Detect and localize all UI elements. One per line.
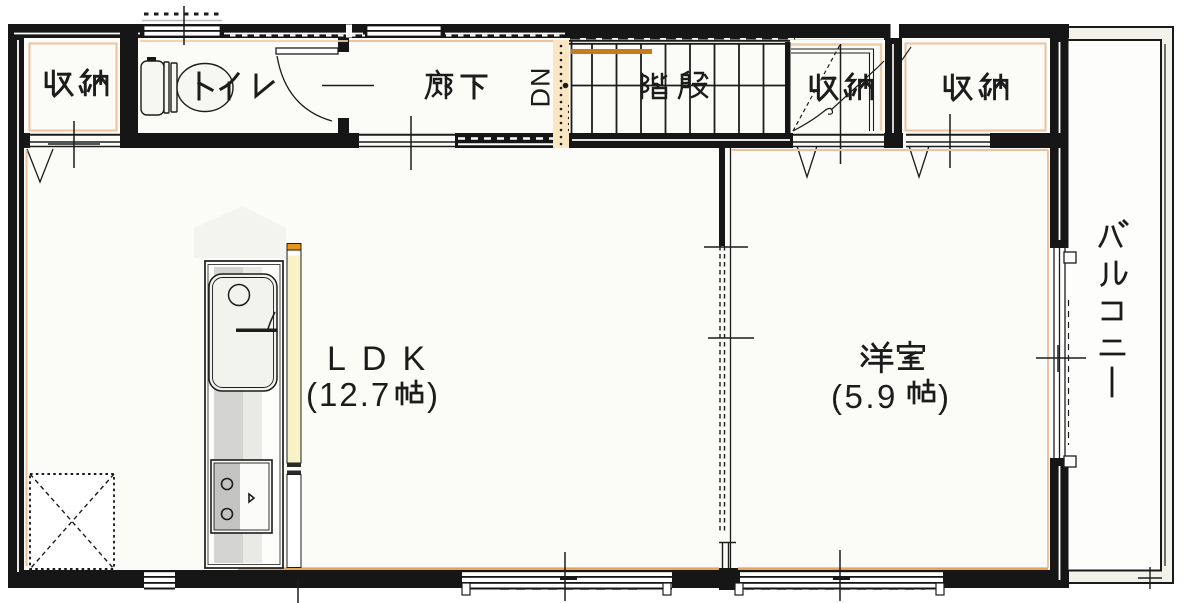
svg-text:DN: DN — [526, 67, 556, 108]
svg-text:(12.7: (12.7 — [306, 376, 391, 413]
svg-text:): ) — [938, 378, 949, 415]
svg-text:(5.9: (5.9 — [831, 378, 898, 415]
svg-text:LDK: LDK — [327, 340, 441, 378]
svg-text:): ) — [427, 376, 438, 413]
